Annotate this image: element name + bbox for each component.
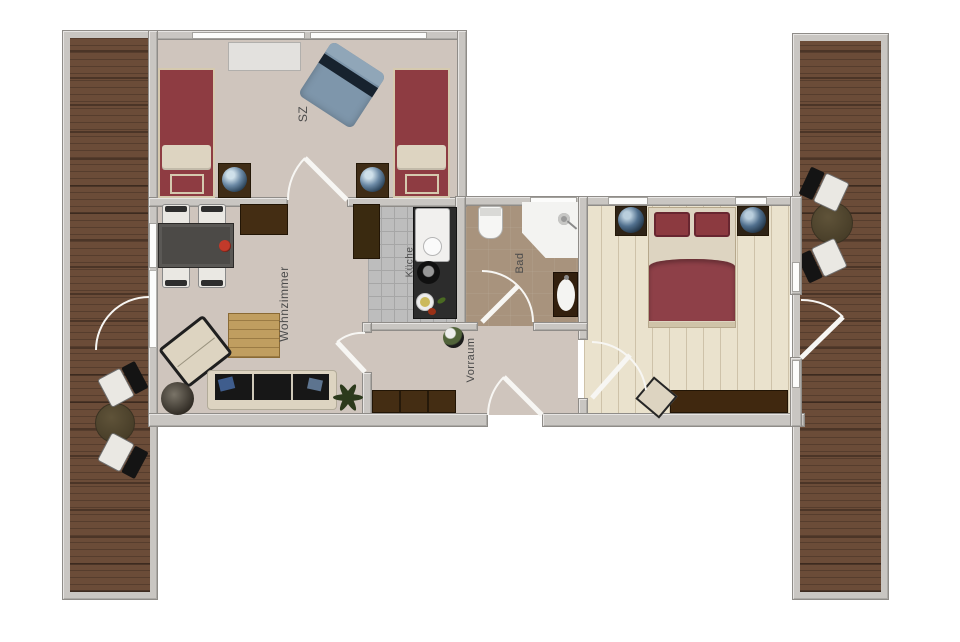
room-label-bad: Bad	[514, 252, 526, 273]
room-label-wohnzimmer: Wohnzimmer	[277, 266, 291, 341]
window	[735, 197, 767, 205]
chair-back	[201, 280, 223, 286]
double-bed	[648, 207, 736, 328]
window	[608, 197, 648, 205]
coffee-table	[228, 313, 280, 358]
kitchen-sink-unit	[415, 208, 450, 262]
window	[192, 32, 305, 39]
deck-left-wood	[70, 38, 150, 592]
sideboard	[240, 204, 288, 235]
potted-plant	[333, 382, 363, 412]
room-label-sz: SZ	[296, 106, 310, 122]
wall	[457, 30, 467, 206]
sink-basin	[423, 237, 442, 256]
bed-pillow	[654, 212, 690, 237]
toilet	[478, 206, 503, 239]
ottoman	[161, 382, 194, 415]
bed-frame	[649, 322, 735, 327]
window	[149, 223, 157, 268]
sink-basin	[557, 279, 575, 311]
wall	[148, 413, 488, 427]
armchair-seam	[177, 337, 215, 367]
cooking-pot	[417, 261, 440, 284]
dresser	[670, 390, 788, 413]
single-bed	[158, 68, 215, 198]
faucet	[564, 275, 569, 280]
window	[792, 262, 800, 292]
bed-pillow	[162, 145, 211, 170]
wall	[362, 322, 372, 333]
table-lamp	[222, 167, 247, 192]
wall	[542, 413, 805, 427]
toilet-tank	[480, 208, 501, 216]
bed-pillow	[397, 145, 446, 170]
bathroom-sink	[553, 272, 578, 317]
potted-plant	[443, 327, 464, 348]
deck-right-wood	[800, 41, 881, 592]
chair-back	[165, 280, 187, 286]
wall	[533, 322, 588, 331]
sofa	[207, 370, 337, 410]
flower-vase	[219, 240, 231, 252]
room-label-kueche: Küche	[405, 247, 416, 278]
dresser	[228, 42, 301, 71]
table-lamp	[618, 207, 644, 233]
wall	[578, 196, 588, 340]
table-lamp	[360, 167, 385, 192]
bed-blanket	[649, 259, 735, 321]
window	[310, 32, 427, 39]
bed-footpad	[170, 174, 204, 194]
tall-cabinet	[353, 204, 380, 259]
hall-bench	[372, 390, 456, 413]
food	[420, 297, 430, 307]
table-lamp	[740, 207, 766, 233]
chair-back	[165, 206, 187, 212]
deck-right	[792, 33, 889, 600]
door-to-deck-left	[149, 270, 157, 348]
single-bed	[393, 68, 450, 198]
chair-back	[201, 206, 223, 212]
window	[792, 360, 800, 388]
bed-footpad	[405, 174, 439, 194]
room-label-vorraum: Vorraum	[465, 337, 477, 382]
deck-left	[62, 30, 158, 600]
food-item	[428, 308, 436, 315]
bed-pillow	[694, 212, 730, 237]
floor-plan: SZ Wohnzimmer Küche Bad Vorraum	[0, 0, 960, 642]
